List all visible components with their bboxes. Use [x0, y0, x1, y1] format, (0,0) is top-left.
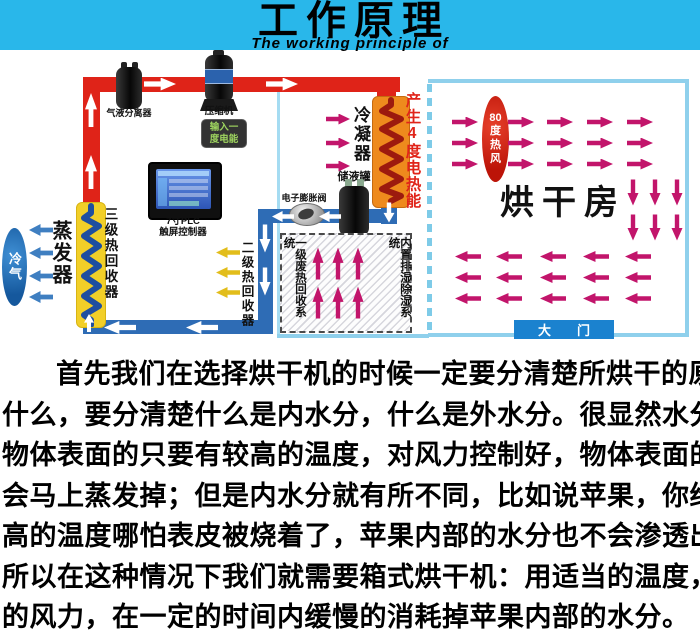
- coil-serpentine-red: [382, 100, 401, 201]
- power-input-badge: 输入一 度电能: [201, 119, 247, 148]
- flow-arrow: [326, 138, 350, 149]
- plc-label: 7寸PLC 触屏控制器: [140, 217, 226, 239]
- badge-line2: 度电能: [202, 134, 246, 146]
- badge-line1: 输入一: [202, 122, 246, 134]
- plc-label-line2: 触屏控制器: [140, 228, 226, 239]
- secondary-recovery-label: 二级热回收器: [240, 241, 253, 329]
- compressor-band: [205, 69, 233, 84]
- waste-heat-label: 一级废热回收系统: [282, 237, 305, 327]
- plc-screen-sidebar: [158, 178, 167, 206]
- plc-screen-grid: [169, 179, 208, 199]
- description-line: 的风力，在一定的时间内缓慢的消耗掉苹果内部的水分。: [2, 597, 700, 638]
- tertiary-recovery-label: 三级热回收器: [103, 207, 117, 327]
- description-line: 高的温度哪怕表皮被烧着了，苹果内部的水分也不会渗透出来，: [2, 516, 700, 557]
- flow-arrow: [326, 161, 350, 172]
- flow-arrow: [216, 247, 240, 258]
- plc-screen-titlebar: [158, 171, 209, 176]
- dehumidify-label: 内置排湿除湿系统: [387, 237, 410, 327]
- hot-wind-oval: 80度热风: [482, 96, 509, 182]
- page-subtitle: The working principle of: [0, 37, 700, 50]
- description-line: 所以在这种情况下我们就需要箱式烘干机：用适当的温度，适当: [2, 557, 700, 598]
- tertiary-heat-recovery-coil: [76, 202, 106, 328]
- flow-arrow: [326, 114, 350, 125]
- plc-screen: [156, 169, 211, 209]
- description-text: 首先我们在选择烘干机的时候一定要分清楚所烘干的原料是 什么，要分清楚什么是内水分…: [2, 354, 700, 638]
- cold-air-oval: 冷气: [2, 228, 27, 306]
- receiver-label: 储液罐: [330, 171, 378, 184]
- description-line: 会马上蒸发掉；但是内水分就有所不同，比如说苹果，你给它超: [2, 476, 700, 517]
- gas-liquid-separator: [116, 67, 142, 109]
- receiver-tank: [339, 186, 369, 236]
- evaporator-label: 蒸发器: [50, 220, 70, 306]
- door-label: 大门: [538, 320, 616, 339]
- flow-arrow: [216, 267, 240, 278]
- description-line: 首先我们在选择烘干机的时候一定要分清楚所烘干的原料是: [2, 354, 700, 395]
- expansion-valve-detail: [297, 207, 315, 221]
- page: 工作原理 The working principle of 气液分离器 压缩机 …: [0, 0, 700, 638]
- hot-wind-label: 80度热风: [488, 112, 503, 167]
- flow-arrow: [216, 287, 240, 298]
- header-banner: 工作原理 The working principle of: [0, 0, 700, 50]
- middle-room-floor: [277, 334, 429, 338]
- expansion-valve-label: 电子膨胀阀: [276, 193, 332, 203]
- door: 大门: [514, 320, 614, 339]
- condenser-label: 冷凝器: [352, 106, 369, 172]
- heat-note-label: 产生4度电热能: [404, 92, 420, 214]
- diagram: 气液分离器 压缩机 输入一 度电能 7寸PLC 触屏控制器 三级热回: [0, 50, 700, 354]
- description-line: 物体表面的只要有较高的温度，对风力控制好，物体表面的水分: [2, 435, 700, 476]
- coil-serpentine-blue: [84, 206, 99, 325]
- compressor-label: 压缩机: [194, 107, 244, 118]
- drying-room-label: 烘干房: [498, 184, 628, 223]
- cold-air-label: 冷气: [8, 252, 21, 282]
- description-line: 什么，要分清楚什么是内水分，什么是外水分。很显然水分是在: [2, 395, 700, 436]
- separator-label: 气液分离器: [96, 108, 162, 118]
- plc-screen-buttons: [169, 201, 199, 206]
- expansion-valve: [289, 203, 325, 226]
